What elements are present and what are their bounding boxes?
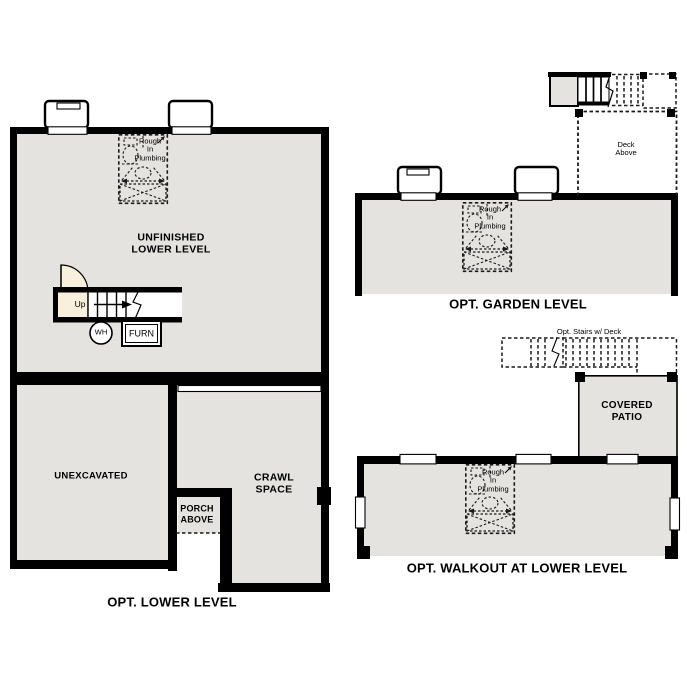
garden-level-caption: OPT. GARDEN LEVEL xyxy=(449,296,587,311)
stairs-up-label: Up xyxy=(75,299,86,309)
floor-plan-sheet: UNFINISHED LOWER LEVEL Rough In Plumbing… xyxy=(0,0,687,687)
opt-stairs-label: Opt. Stairs w/ Deck xyxy=(557,328,621,336)
rough-in-plumbing-note-lower: Rough In Plumbing xyxy=(134,138,165,163)
water-heater-label: WH xyxy=(95,329,108,338)
walkout-level-plan xyxy=(356,338,680,559)
crawl-space-room xyxy=(177,391,321,583)
lower-level-caption: OPT. LOWER LEVEL xyxy=(107,594,237,609)
walkout-level-caption: OPT. WALKOUT AT LOWER LEVEL xyxy=(407,560,628,575)
unexcavated-label: UNEXCAVATED xyxy=(54,470,128,481)
label-line: Above xyxy=(615,149,636,157)
label-line: PORCH xyxy=(180,503,214,514)
deck-above-label: Deck Above xyxy=(615,141,636,158)
porch-above-label: PORCH ABOVE xyxy=(180,503,214,524)
label-line: LOWER LEVEL xyxy=(131,244,210,256)
label-line: ABOVE xyxy=(180,514,214,525)
deck-stairs xyxy=(548,72,676,108)
label-line: SPACE xyxy=(254,484,294,496)
label-line: UNFINISHED xyxy=(131,232,210,244)
crawl-space-label: CRAWL SPACE xyxy=(254,472,294,497)
pier xyxy=(317,487,331,505)
label-line: PATIO xyxy=(601,412,653,424)
rough-in-plumbing-note-walkout: Rough In Plumbing xyxy=(477,469,508,494)
label-line: Plumbing xyxy=(477,485,508,493)
garden-level-plan xyxy=(355,72,678,296)
unfinished-lower-level-label: UNFINISHED LOWER LEVEL xyxy=(131,232,210,257)
label-line: COVERED xyxy=(601,400,653,412)
floor-plan-drawing xyxy=(0,0,687,687)
covered-patio-label: COVERED PATIO xyxy=(601,400,653,424)
lower-level-plan xyxy=(10,101,331,592)
break-line xyxy=(552,338,559,366)
label-line: Plumbing xyxy=(474,222,505,230)
opt-stairs-outline xyxy=(502,338,677,373)
label-line: CRAWL xyxy=(254,472,294,484)
rough-in-plumbing-note-garden: Rough In Plumbing xyxy=(474,206,505,231)
furnace-label: FURN xyxy=(129,329,154,340)
label-line: Plumbing xyxy=(134,154,165,162)
